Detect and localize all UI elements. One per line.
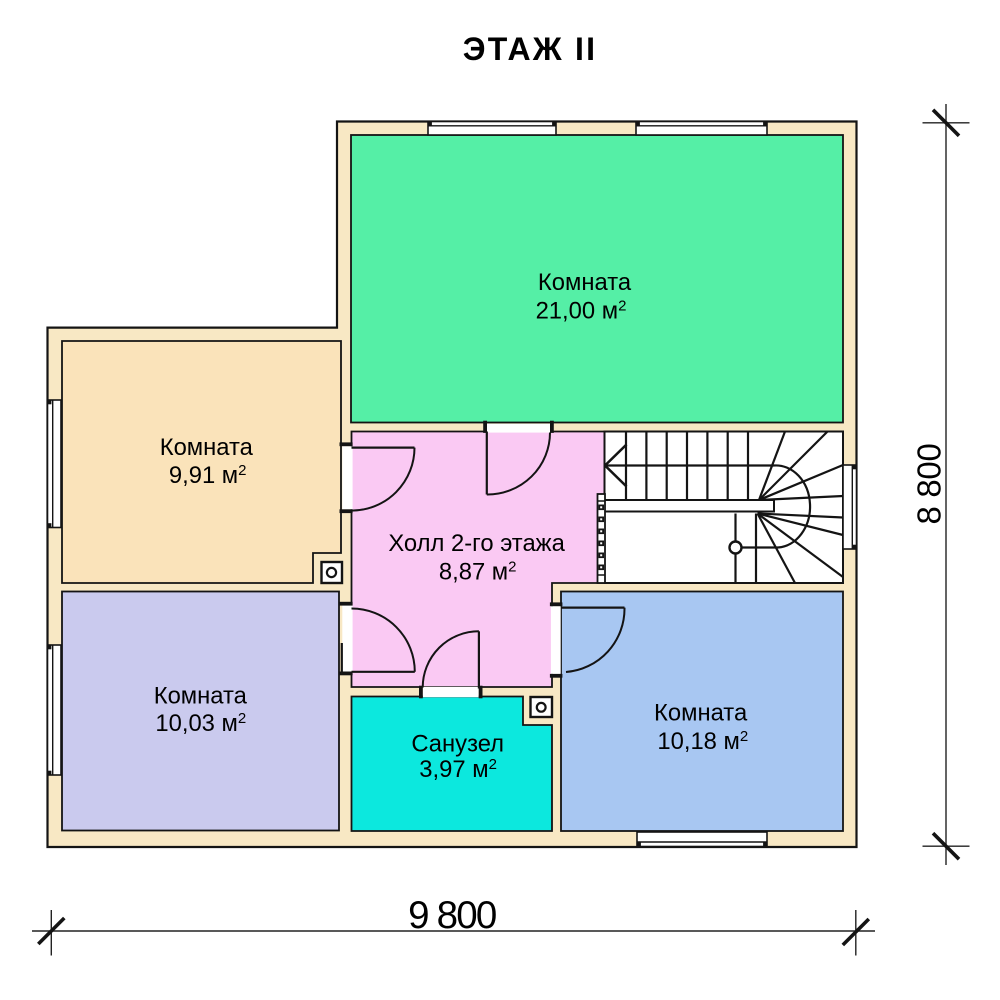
svg-text:Комната: Комната bbox=[538, 269, 632, 296]
svg-text:ЭТАЖ II: ЭТАЖ II bbox=[463, 31, 597, 67]
svg-text:Комната: Комната bbox=[654, 700, 748, 727]
svg-text:10,03 м2: 10,03 м2 bbox=[155, 710, 246, 737]
svg-text:Комната: Комната bbox=[160, 434, 254, 461]
svg-text:9 800: 9 800 bbox=[408, 894, 496, 937]
svg-text:21,00 м2: 21,00 м2 bbox=[536, 298, 627, 325]
svg-text:Комната: Комната bbox=[154, 683, 248, 710]
svg-text:3,97 м2: 3,97 м2 bbox=[419, 756, 497, 783]
svg-text:Холл 2-го этажа: Холл 2-го этажа bbox=[388, 530, 565, 557]
svg-text:9,91 м2: 9,91 м2 bbox=[169, 462, 247, 489]
svg-text:8 800: 8 800 bbox=[911, 443, 948, 524]
svg-text:8,87 м2: 8,87 м2 bbox=[439, 559, 517, 586]
svg-text:Санузел: Санузел bbox=[411, 731, 504, 758]
svg-text:10,18 м2: 10,18 м2 bbox=[657, 728, 748, 755]
